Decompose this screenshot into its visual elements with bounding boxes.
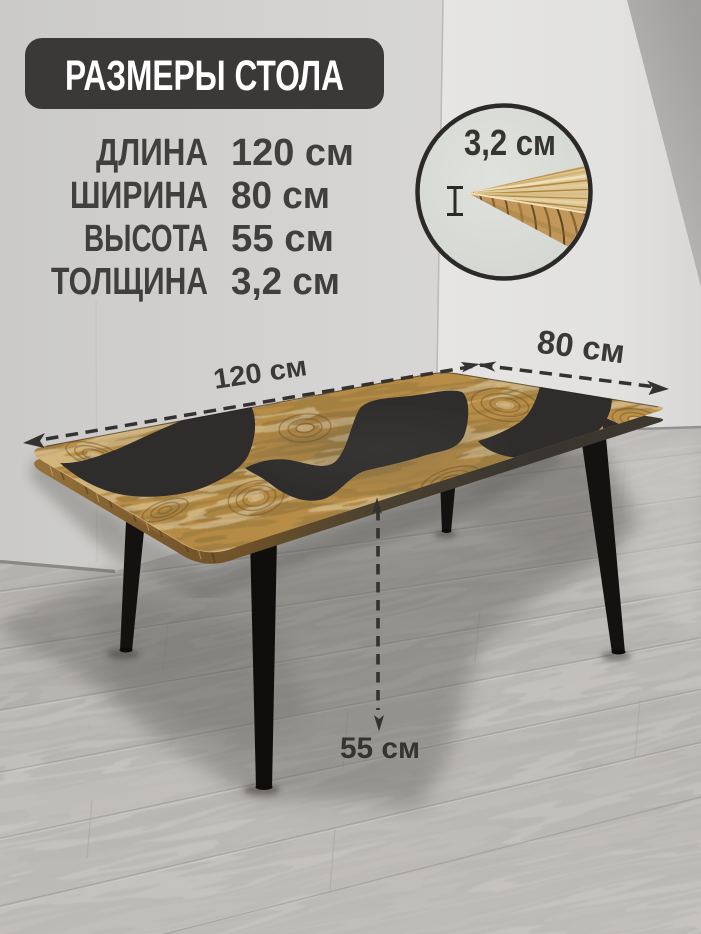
svg-text:3,2 см: 3,2 см [231, 261, 340, 303]
svg-text:ДЛИНА: ДЛИНА [96, 132, 208, 174]
svg-text:55 см: 55 см [231, 218, 334, 260]
svg-text:ВЫСОТА: ВЫСОТА [84, 218, 208, 260]
svg-text:РАЗМЕРЫ СТОЛА: РАЗМЕРЫ СТОЛА [65, 52, 344, 100]
svg-text:55 см: 55 см [340, 732, 420, 765]
svg-text:120 см: 120 см [231, 132, 354, 174]
svg-text:80 см: 80 см [231, 175, 330, 217]
svg-text:ШИРИНА: ШИРИНА [70, 175, 208, 217]
svg-text:3,2 см: 3,2 см [464, 122, 556, 163]
svg-text:ТОЛЩИНА: ТОЛЩИНА [51, 261, 208, 303]
